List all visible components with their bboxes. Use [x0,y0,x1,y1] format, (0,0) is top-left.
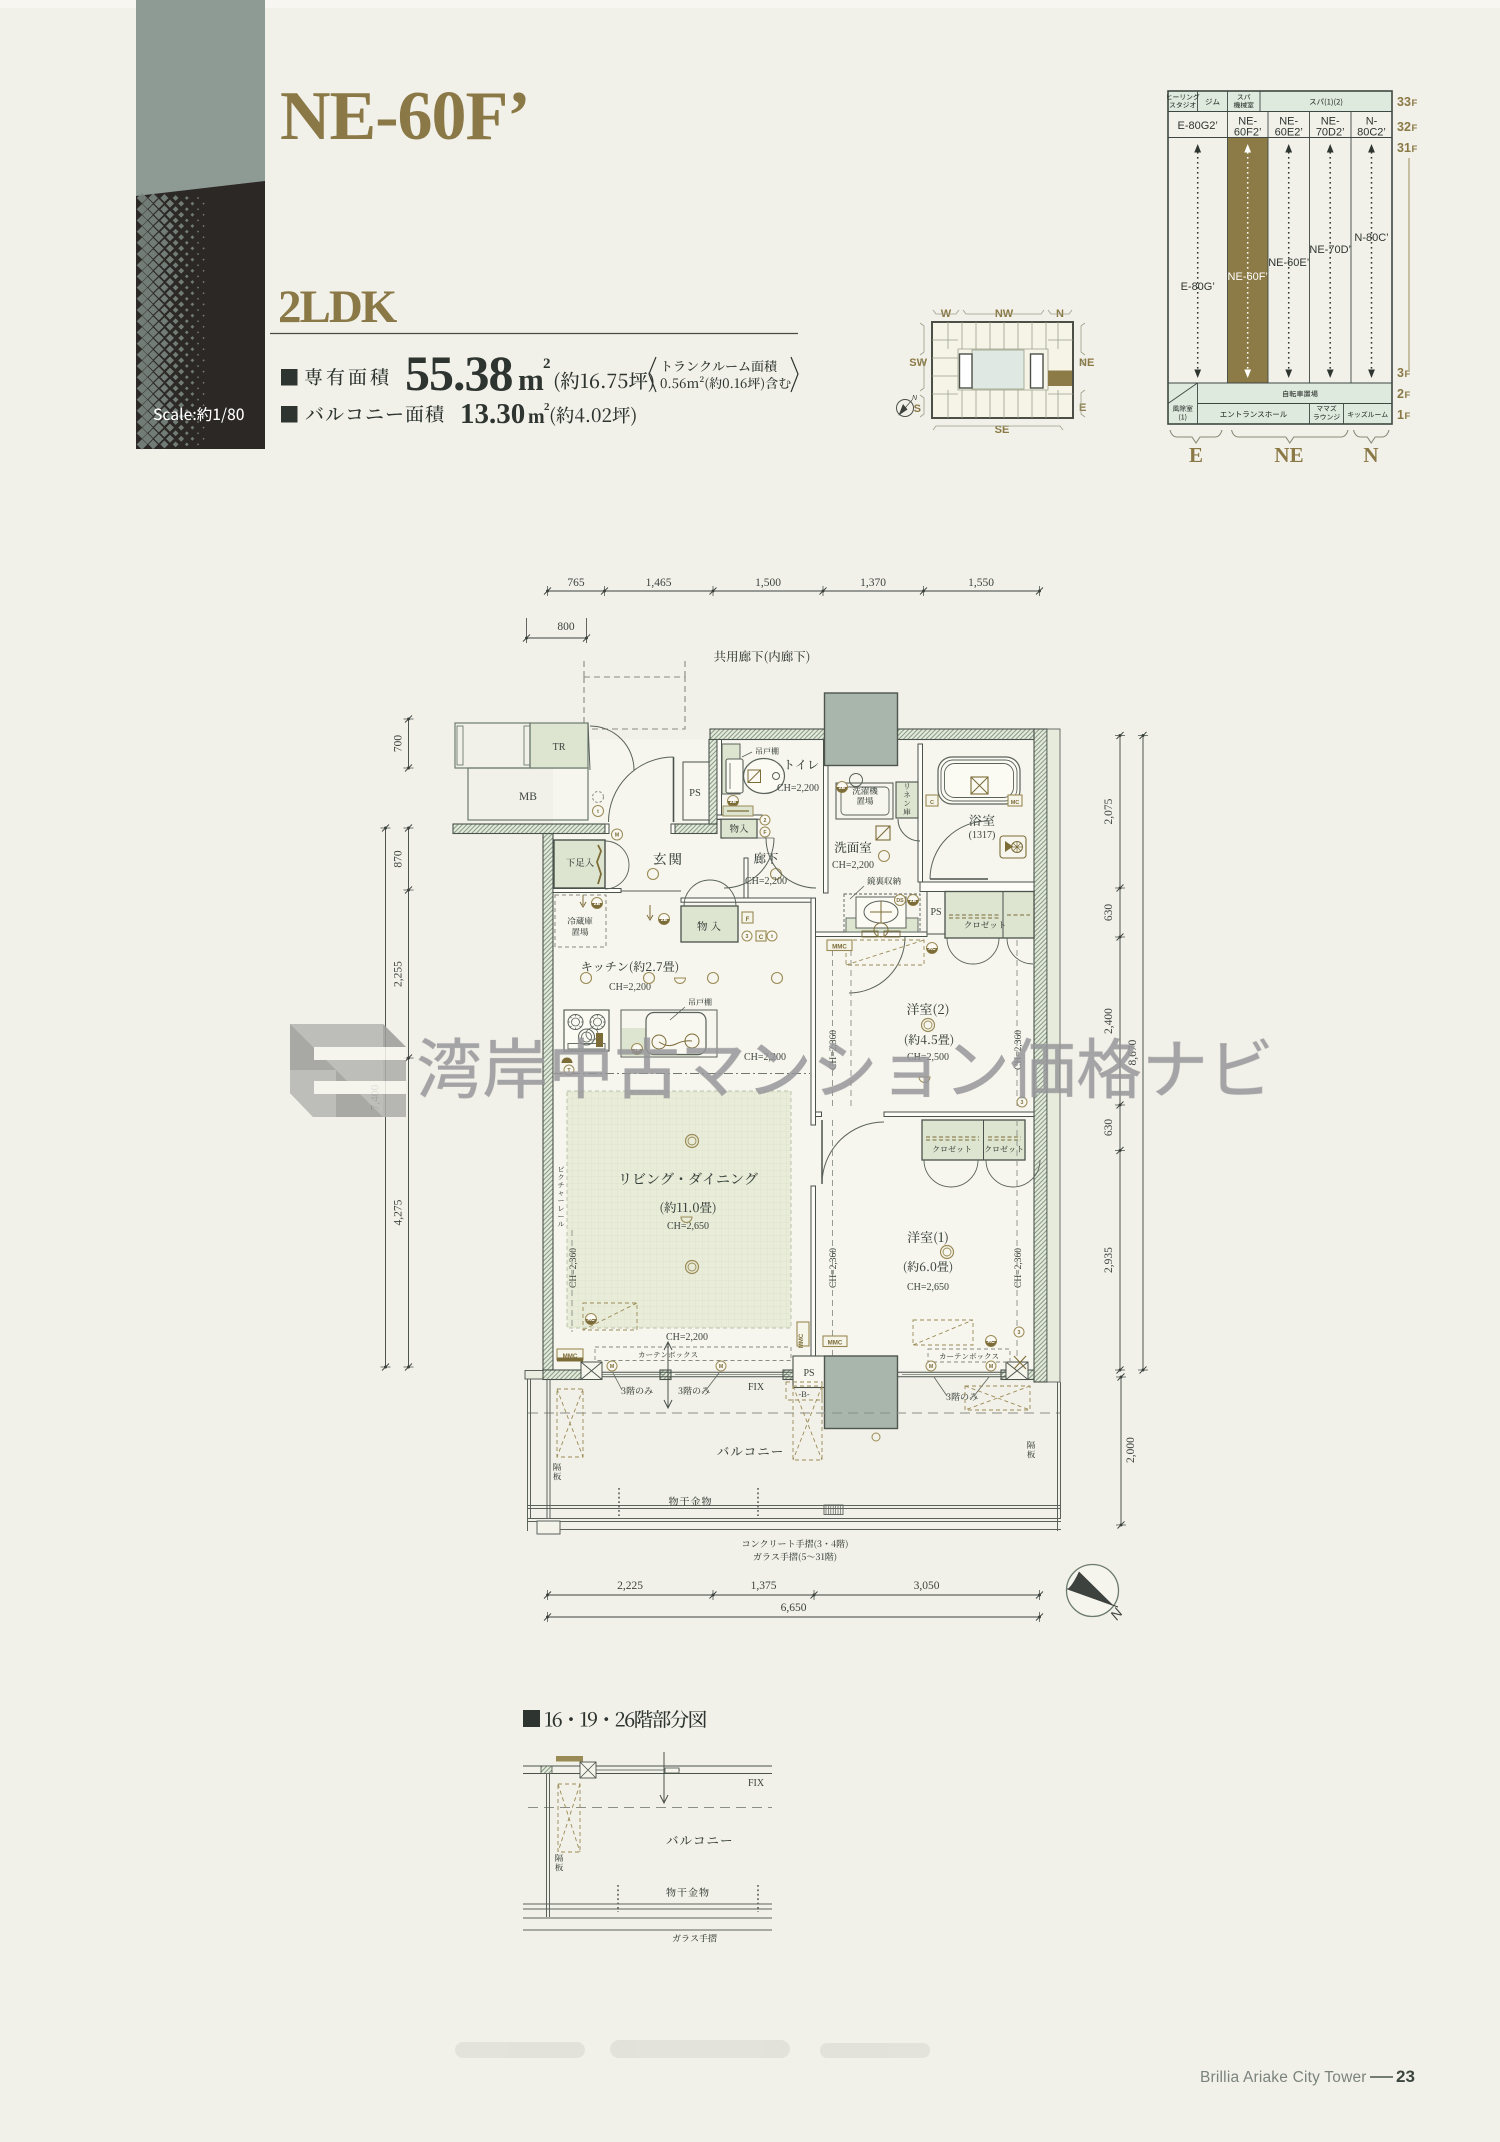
svg-text:NE-70D’: NE-70D’ [1309,244,1351,256]
svg-text:PS: PS [930,907,941,918]
svg-text:33: 33 [1397,95,1411,109]
svg-text:M: M [615,832,619,838]
svg-text:2,000: 2,000 [1125,1437,1137,1463]
svg-text:2: 2 [544,401,550,413]
svg-text:CH=2,200: CH=2,200 [609,982,651,993]
svg-text:CH=2,360: CH=2,360 [569,1248,579,1288]
svg-text:31: 31 [1397,141,1411,155]
svg-text:2,075: 2,075 [1103,798,1115,824]
svg-text:2E: 2E [839,785,846,791]
svg-text:765: 765 [567,577,585,589]
svg-text:SW: SW [909,357,927,369]
svg-text:C: C [759,934,764,941]
svg-text:1,375: 1,375 [751,1580,777,1592]
svg-text:F: F [746,916,750,923]
svg-text:2LDK: 2LDK [278,281,398,333]
svg-text:4,275: 4,275 [393,1199,405,1225]
svg-text:M: M [610,1364,614,1370]
svg-text:23: 23 [1396,2067,1415,2086]
svg-text:60E2’: 60E2’ [1275,127,1303,139]
svg-text:1,500: 1,500 [755,577,781,589]
svg-text:80C2’: 80C2’ [1357,127,1386,139]
svg-text:M: M [989,1364,993,1370]
svg-text:F: F [763,830,766,836]
svg-text:FIX: FIX [748,1778,765,1789]
svg-text:AC: AC [587,1317,595,1323]
svg-text:DS: DS [896,898,904,904]
svg-text:CH=2,200: CH=2,200 [745,876,787,887]
svg-text:F: F [1412,144,1418,155]
svg-text:700: 700 [393,735,405,753]
svg-text:1: 1 [1397,408,1404,422]
svg-text:S: S [914,403,921,415]
svg-text:870: 870 [393,850,405,868]
svg-text:E-80G2’: E-80G2’ [1178,120,1218,132]
svg-text:N: N [1363,443,1378,467]
svg-text:NE-60E’: NE-60E’ [1268,257,1309,269]
svg-text:F: F [1412,98,1418,109]
svg-text:N-80C’: N-80C’ [1354,232,1388,244]
svg-text:M: M [929,1364,933,1370]
svg-text:MMC: MMC [799,1333,805,1348]
svg-text:CH=2,200: CH=2,200 [666,1332,708,1343]
svg-text:MB: MB [519,791,537,803]
svg-text:m: m [518,362,544,397]
svg-text:MMC: MMC [832,944,847,951]
svg-text:2E: 2E [661,917,668,923]
svg-text:F: F [1405,369,1411,380]
svg-text:F: F [1405,390,1411,401]
svg-text:2E: 2E [594,901,601,907]
svg-text:630: 630 [1103,904,1115,922]
svg-text:2E: 2E [730,799,737,805]
svg-text:2,255: 2,255 [393,961,405,987]
svg-text:AC: AC [987,1339,995,1345]
svg-text:CH=2,360: CH=2,360 [829,1248,839,1288]
svg-text:1,550: 1,550 [968,577,994,589]
svg-text:TR: TR [553,742,566,753]
svg-text:M: M [719,1364,723,1370]
svg-text:2,225: 2,225 [617,1580,643,1592]
svg-text:E: E [1079,402,1086,414]
svg-text:1,465: 1,465 [646,577,672,589]
svg-text:3: 3 [746,934,749,940]
svg-text:6,650: 6,650 [781,1602,807,1614]
svg-text:MMC: MMC [828,1340,843,1347]
svg-text:CH=2,650: CH=2,650 [907,1282,949,1293]
svg-text:CH=2,200: CH=2,200 [777,783,819,794]
svg-text:MC: MC [1011,800,1020,806]
svg-text:(1317): (1317) [969,830,996,841]
svg-text:PS: PS [689,788,701,799]
svg-text:2,400: 2,400 [1103,1008,1115,1034]
svg-text:2E: 2E [910,898,917,904]
svg-text:630: 630 [1103,1119,1115,1137]
svg-text:AC: AC [928,946,936,952]
svg-text:C: C [930,800,934,806]
svg-text:F: F [1405,411,1411,422]
svg-text:E-80G’: E-80G’ [1181,281,1215,293]
svg-text:m: m [528,406,545,428]
svg-text:55.38: 55.38 [405,345,513,401]
svg-text:-B-: -B- [798,1389,810,1399]
svg-text:NE-60F’: NE-60F’ [280,78,530,155]
svg-text:t: t [597,809,599,815]
svg-text:32: 32 [1397,120,1411,134]
svg-text:CH=2,200: CH=2,200 [832,860,874,871]
svg-text:13.30: 13.30 [460,398,525,430]
svg-text:1,370: 1,370 [860,577,886,589]
svg-text:E: E [1189,443,1203,467]
svg-text:F: F [1412,123,1418,134]
svg-text:NE-60F’: NE-60F’ [1228,271,1268,283]
svg-text:Brillia Ariake City Tower: Brillia Ariake City Tower [1200,2069,1367,2086]
svg-text:800: 800 [557,621,575,633]
svg-text:t: t [771,934,773,940]
svg-text:3: 3 [1021,1100,1024,1106]
svg-text:FIX: FIX [748,1382,765,1393]
svg-text:3,050: 3,050 [914,1580,940,1592]
svg-text:60F2’: 60F2’ [1234,127,1262,139]
svg-text:PS: PS [803,1368,814,1379]
svg-text:2: 2 [1397,387,1404,401]
svg-text:3: 3 [1018,1330,1021,1336]
svg-text:2,935: 2,935 [1103,1247,1115,1273]
svg-text:2: 2 [764,818,767,824]
svg-text:3: 3 [1397,366,1404,380]
svg-text:2: 2 [543,356,551,372]
svg-text:NE: NE [1274,443,1303,467]
svg-text:CH=2,360: CH=2,360 [1014,1248,1024,1288]
svg-text:70D2’: 70D2’ [1316,127,1345,139]
